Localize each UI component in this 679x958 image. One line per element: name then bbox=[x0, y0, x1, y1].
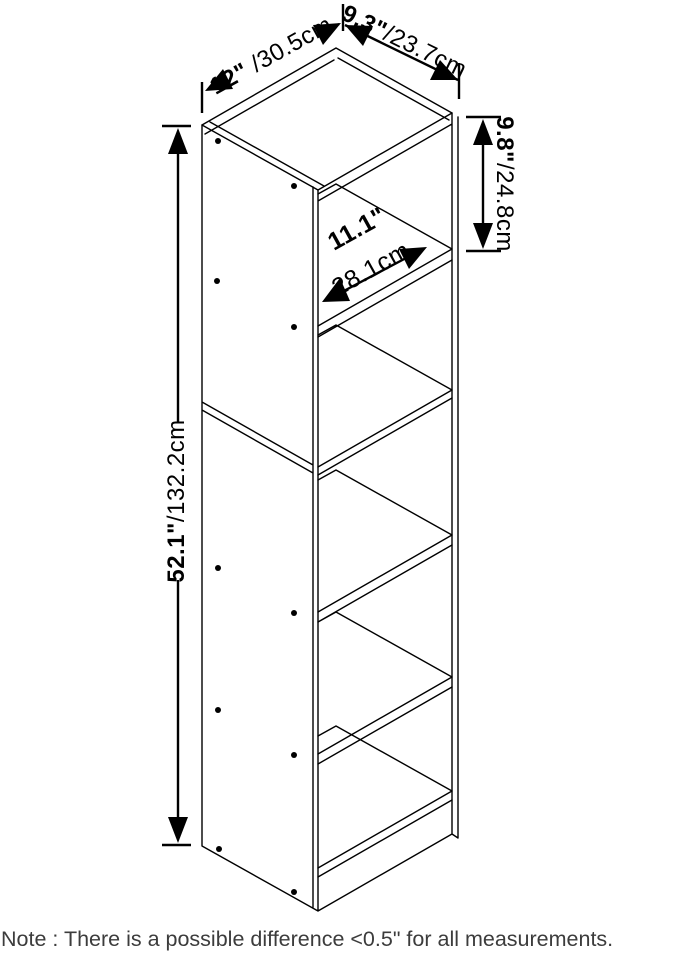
cam-hole-dot bbox=[215, 707, 221, 713]
cam-hole-dot bbox=[215, 565, 221, 571]
cam-hole-dot bbox=[291, 752, 297, 758]
background bbox=[0, 0, 679, 958]
cam-hole-dot bbox=[291, 183, 297, 189]
cam-hole-dot bbox=[216, 846, 222, 852]
cam-hole-dot bbox=[215, 138, 221, 144]
cam-hole-dot bbox=[291, 889, 297, 895]
cam-hole-dot bbox=[291, 610, 297, 616]
compartment-height-dimension-label: 9.8"/24.8cm bbox=[491, 116, 518, 252]
cam-hole-dot bbox=[291, 324, 297, 330]
bookshelf-dimension-diagram: 52.1"/132.2cm 9.8"/24.8cm 12" /30.5cm 9.… bbox=[0, 0, 679, 958]
height-dimension-label: 52.1"/132.2cm bbox=[163, 419, 190, 582]
cam-hole-dot bbox=[214, 278, 220, 284]
note-text: Note : There is a possible difference <0… bbox=[1, 927, 613, 951]
diagram-page: 52.1"/132.2cm 9.8"/24.8cm 12" /30.5cm 9.… bbox=[0, 0, 679, 958]
